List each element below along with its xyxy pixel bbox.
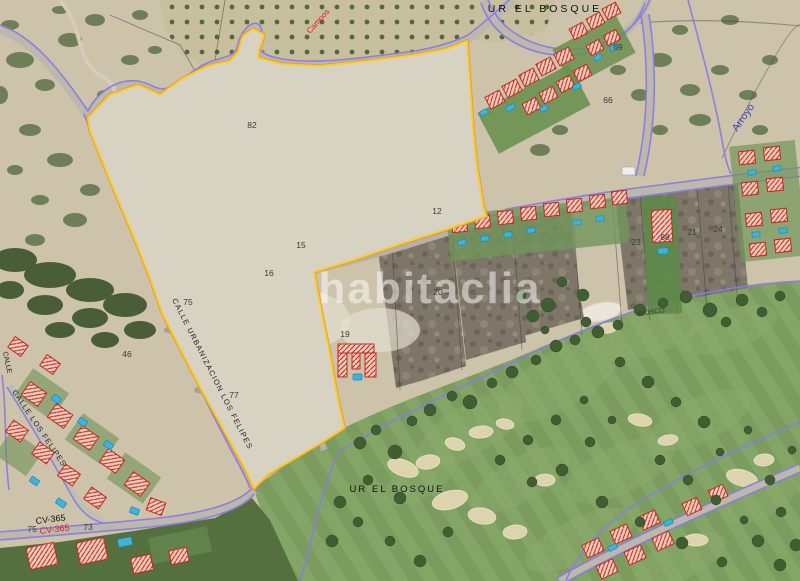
parcel-number: 21 [687, 227, 697, 237]
tree [776, 507, 786, 517]
tree [414, 555, 426, 567]
tree [635, 517, 645, 527]
scrub-patch [552, 125, 568, 135]
parcel-number: 82 [247, 120, 257, 130]
building-footprint [520, 206, 536, 220]
tree [541, 326, 549, 334]
scrub-patch [121, 55, 139, 65]
tree [775, 291, 785, 301]
scrub-patch [35, 79, 55, 91]
swimming-pool [458, 240, 466, 246]
tree [388, 445, 402, 459]
swimming-pool [748, 170, 756, 176]
scrub-patch [85, 14, 105, 26]
tree [523, 435, 533, 445]
tree [717, 557, 727, 567]
tree [447, 391, 457, 401]
building-footprint [497, 210, 513, 224]
building-footprint [774, 238, 791, 253]
swimming-pool [773, 166, 781, 172]
tree [752, 535, 764, 547]
building-footprint [589, 194, 605, 208]
swimming-pool [752, 232, 760, 238]
tree [671, 397, 681, 407]
scrub-patch [47, 153, 73, 167]
swimming-pool [779, 228, 787, 234]
swimming-pool [481, 236, 489, 242]
tree [790, 539, 800, 551]
scrub-patch [610, 65, 626, 75]
tree [788, 446, 796, 454]
dense-vegetation [27, 295, 63, 315]
tree [334, 496, 346, 508]
tree [615, 357, 625, 367]
building-footprint [131, 554, 154, 574]
tree [407, 416, 417, 426]
parcel-number: 46 [122, 349, 132, 359]
dense-vegetation [124, 321, 156, 339]
dense-vegetation [24, 262, 76, 288]
tree [740, 516, 748, 524]
satellite-map-image[interactable]: habitaclia UR EL BOSQUE UR EL BOSQUE CAL… [0, 0, 800, 581]
parcel-number: 23 [631, 237, 641, 247]
scrub-patch [80, 184, 100, 196]
tree [716, 448, 724, 456]
tree [592, 326, 604, 338]
tree [580, 396, 588, 404]
tree [353, 517, 363, 527]
scrub-patch [711, 65, 729, 75]
building-footprint [169, 547, 190, 564]
tree [443, 527, 453, 537]
scrub-patch [721, 15, 739, 25]
parcel-number: 12 [432, 206, 442, 216]
parcel-number: 88 [660, 232, 670, 242]
parcel-number: 19 [340, 329, 350, 339]
tree [680, 291, 692, 303]
tree [385, 536, 395, 546]
scrub-patch [132, 10, 148, 20]
tree [557, 277, 567, 287]
building-footprint [352, 353, 360, 369]
swimming-pool [596, 216, 604, 222]
small-building-white-roof [622, 167, 635, 175]
plot [615, 184, 748, 310]
tree [550, 340, 562, 352]
tree [570, 335, 580, 345]
dense-vegetation [103, 293, 147, 317]
swimming-pool [353, 374, 362, 380]
tree [721, 317, 731, 327]
building-footprint [745, 212, 762, 227]
tree [655, 455, 665, 465]
parcel-number: 75 [27, 524, 37, 534]
tree [736, 294, 748, 306]
parcel-number: 20 [433, 287, 443, 297]
tree [577, 289, 589, 301]
building-footprint [566, 198, 582, 212]
scrub-patch [680, 84, 700, 96]
tree [613, 320, 623, 330]
tree [703, 303, 717, 317]
scrub-patch [689, 114, 711, 126]
urbanization-label-golf: UR EL BOSQUE [350, 484, 445, 495]
scrub-patch [63, 213, 87, 227]
parcel-number: 15 [296, 240, 306, 250]
tree [326, 535, 338, 547]
parcel-number: 73 [83, 522, 93, 532]
tree [527, 477, 537, 487]
parcel-number: 66 [603, 95, 613, 105]
tree [581, 317, 591, 327]
tree [531, 355, 541, 365]
scrub-patch [752, 125, 768, 135]
parcel-number: 16 [264, 268, 274, 278]
dense-vegetation [72, 308, 108, 328]
parcel-number: 75 [183, 297, 193, 307]
building-footprint [543, 202, 559, 216]
scrub-patch [530, 144, 550, 156]
parcel-number: 24 [713, 224, 723, 234]
sand-bunker [535, 474, 555, 486]
parcel-number: 77 [229, 390, 239, 400]
aerial-cadastral-map[interactable]: habitaclia UR EL BOSQUE UR EL BOSQUE CAL… [0, 0, 800, 581]
scrub-patch [31, 195, 49, 205]
building-footprint [741, 181, 758, 196]
building-footprint [611, 190, 627, 204]
swimming-pool [658, 248, 668, 255]
tree [506, 366, 518, 378]
tree [556, 464, 568, 476]
tree [765, 475, 775, 485]
scrub-patch [672, 25, 688, 35]
building-footprint [338, 344, 374, 353]
scrub-patch [6, 52, 34, 68]
tree [711, 495, 721, 505]
tree [642, 376, 654, 388]
tree [585, 437, 595, 447]
building-footprint [766, 177, 783, 192]
swimming-pool [527, 228, 535, 234]
scrub-patch [652, 125, 668, 135]
tree [676, 537, 688, 549]
tree [757, 307, 767, 317]
building-footprint [763, 146, 780, 161]
tree [354, 437, 366, 449]
tree [487, 378, 497, 388]
tree [424, 404, 436, 416]
tree [371, 425, 381, 435]
tree [541, 298, 555, 312]
swimming-pool [573, 220, 581, 226]
scrub-patch [25, 234, 45, 246]
tree [608, 416, 616, 424]
tree [463, 395, 477, 409]
tree [551, 415, 561, 425]
building-footprint [749, 242, 766, 257]
building-footprint [365, 353, 376, 377]
building-footprint [770, 208, 787, 223]
tree [683, 475, 693, 485]
tree [596, 496, 608, 508]
scrub-patch [7, 165, 23, 175]
tree [744, 426, 752, 434]
scrub-patch [19, 124, 41, 136]
dense-vegetation [45, 322, 75, 338]
tree [495, 455, 505, 465]
building-footprint [338, 353, 347, 377]
urbanization-label-top: UR EL BOSQUE [488, 3, 602, 15]
parcel-number: 69 [613, 42, 623, 52]
scrub-patch [148, 46, 162, 54]
tree [774, 559, 786, 571]
tree [698, 416, 710, 428]
scrub-patch [762, 55, 778, 65]
building-footprint [738, 150, 755, 165]
dense-vegetation [91, 332, 119, 348]
watermark: habitaclia [319, 264, 542, 313]
swimming-pool [504, 232, 512, 238]
scrub-patch [739, 90, 757, 100]
